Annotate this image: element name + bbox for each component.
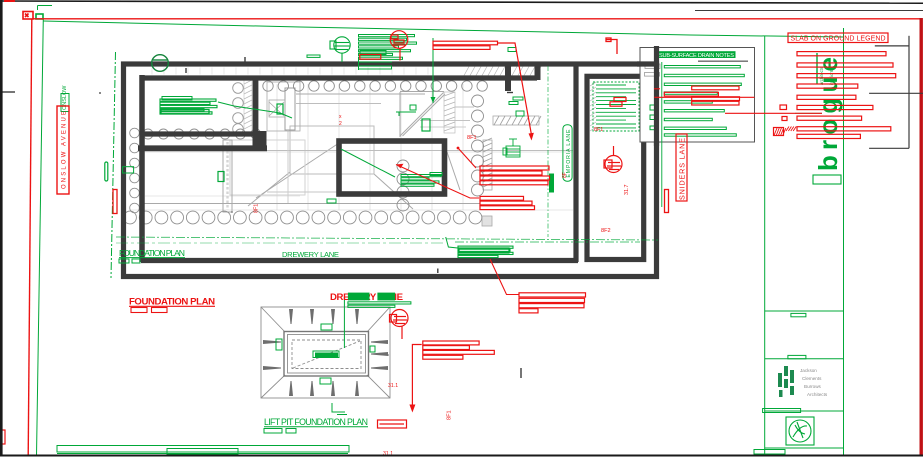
svg-text:31.7: 31.7 [624, 185, 630, 196]
svg-text:8F1: 8F1 [594, 127, 603, 133]
svg-text:8F1: 8F1 [467, 135, 477, 141]
svg-text:8F2: 8F2 [601, 228, 611, 234]
svg-text:2: 2 [339, 121, 342, 127]
svg-text:Jackson: Jackson [800, 368, 817, 373]
svg-text:SLAB ON GROUND LEGEND: SLAB ON GROUND LEGEND [791, 36, 886, 43]
svg-text:Burrows: Burrows [804, 384, 822, 389]
svg-text:EMPORIA LANE: EMPORIA LANE [566, 129, 572, 178]
svg-text:SNIDERS LANE: SNIDERS LANE [678, 138, 687, 200]
svg-text:8F1: 8F1 [254, 204, 260, 213]
svg-text:FOUNDATION PLAN: FOUNDATION PLAN [119, 248, 185, 258]
svg-text:architects: architects [819, 67, 824, 85]
svg-text:Clements: Clements [802, 376, 822, 381]
svg-text:SUB-SURFACE DRAIN NOTES: SUB-SURFACE DRAIN NOTES [659, 53, 734, 59]
svg-text:LIFT PIT FOUNDATION PLAN: LIFT PIT FOUNDATION PLAN [264, 417, 368, 427]
svg-text:8F1: 8F1 [447, 410, 453, 420]
svg-text:Architects: Architects [807, 392, 828, 397]
svg-text:31.1: 31.1 [388, 383, 398, 389]
svg-text:8F: 8F [562, 172, 568, 178]
svg-text:DREWERY LANE: DREWERY LANE [282, 250, 339, 259]
